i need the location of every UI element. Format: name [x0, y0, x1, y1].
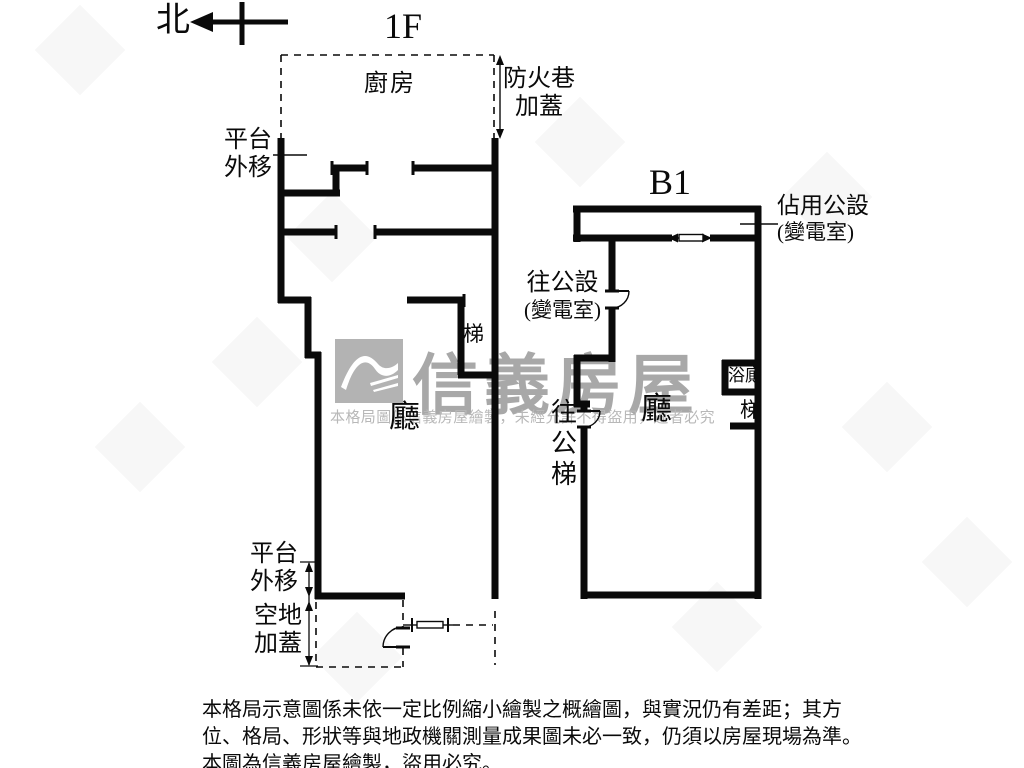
floorplan-page: 信義房屋 本格局圖係信義房屋繪製，未經允許不得盜用，違者必究	[0, 0, 1024, 768]
label-platform-bottom-line1: 平台	[250, 541, 298, 569]
room-label-stairs-b1: 梯	[740, 398, 761, 422]
walls-1f	[278, 138, 495, 599]
room-label-hall-b1: 廳	[641, 391, 672, 427]
vacant-land-dashed-outline	[316, 600, 495, 667]
label-platform-top-line2: 外移	[224, 155, 272, 183]
plan-title-1f: 1F	[384, 6, 422, 48]
disclaimer-text: 本格局示意圖係未依一定比例縮小繪製之概繪圖，與實況仍有差距；其方 位、格局、形狀…	[202, 697, 862, 768]
label-platform-bottom-line2: 外移	[250, 569, 298, 597]
room-label-bath-b1: 浴廁	[728, 366, 762, 386]
door-b1-to-public-stairs	[584, 411, 600, 427]
door-1f-bottom	[383, 627, 410, 647]
label-occupied-line2: (變電室)	[777, 220, 869, 244]
room-label-stairs-1f: 梯	[463, 322, 484, 346]
disclaimer-line2: 位、格局、形狀等與地政機關測量成果圖未必一致，仍須以房屋現場為準。	[202, 724, 862, 751]
plan-title-b1: B1	[649, 162, 691, 204]
label-fire-lane-line1: 防火巷	[503, 66, 575, 94]
opening-b1-transformer	[668, 234, 712, 243]
room-label-hall-1f: 廳	[389, 399, 420, 435]
label-to-public-stairs-char3: 梯	[551, 459, 577, 490]
label-vacant-line1: 空地	[254, 603, 302, 631]
door-b1-to-common	[612, 291, 629, 308]
label-to-common-line1: 往公設	[524, 270, 601, 298]
disclaimer-line3: 本圖為信義房屋繪製，盜用必究。	[202, 751, 862, 768]
north-arrow-icon	[190, 2, 288, 45]
label-vacant-line2: 加蓋	[254, 631, 302, 659]
room-label-kitchen: 廚房	[364, 71, 416, 99]
window-1f-bottom	[403, 618, 453, 632]
label-to-public-stairs-char1: 往	[551, 397, 577, 428]
north-label: 北	[156, 1, 190, 40]
label-to-public-stairs-char2: 公	[551, 428, 577, 459]
disclaimer-line1: 本格局示意圖係未依一定比例縮小繪製之概繪圖，與實況仍有差距；其方	[202, 697, 862, 724]
label-platform-top-line1: 平台	[224, 127, 272, 155]
label-occupied-line1: 佔用公設	[777, 193, 869, 220]
label-fire-lane-line2: 加蓋	[503, 94, 575, 122]
label-to-common-line2: (變電室)	[524, 298, 601, 322]
